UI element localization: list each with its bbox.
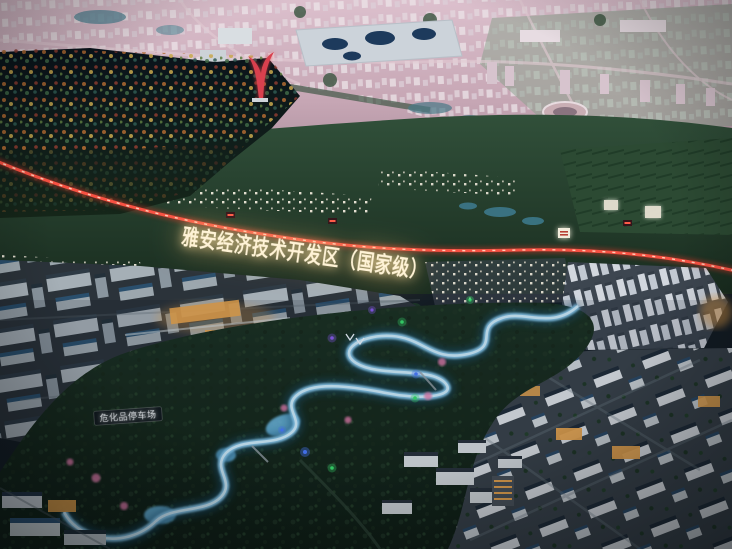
model-scene: 危化品停车场 雅安经济技术开发区（国家级） <box>0 0 732 549</box>
city-model-photo: 危化品停车场 雅安经济技术开发区（国家级） <box>0 0 732 549</box>
vignette <box>0 0 732 549</box>
